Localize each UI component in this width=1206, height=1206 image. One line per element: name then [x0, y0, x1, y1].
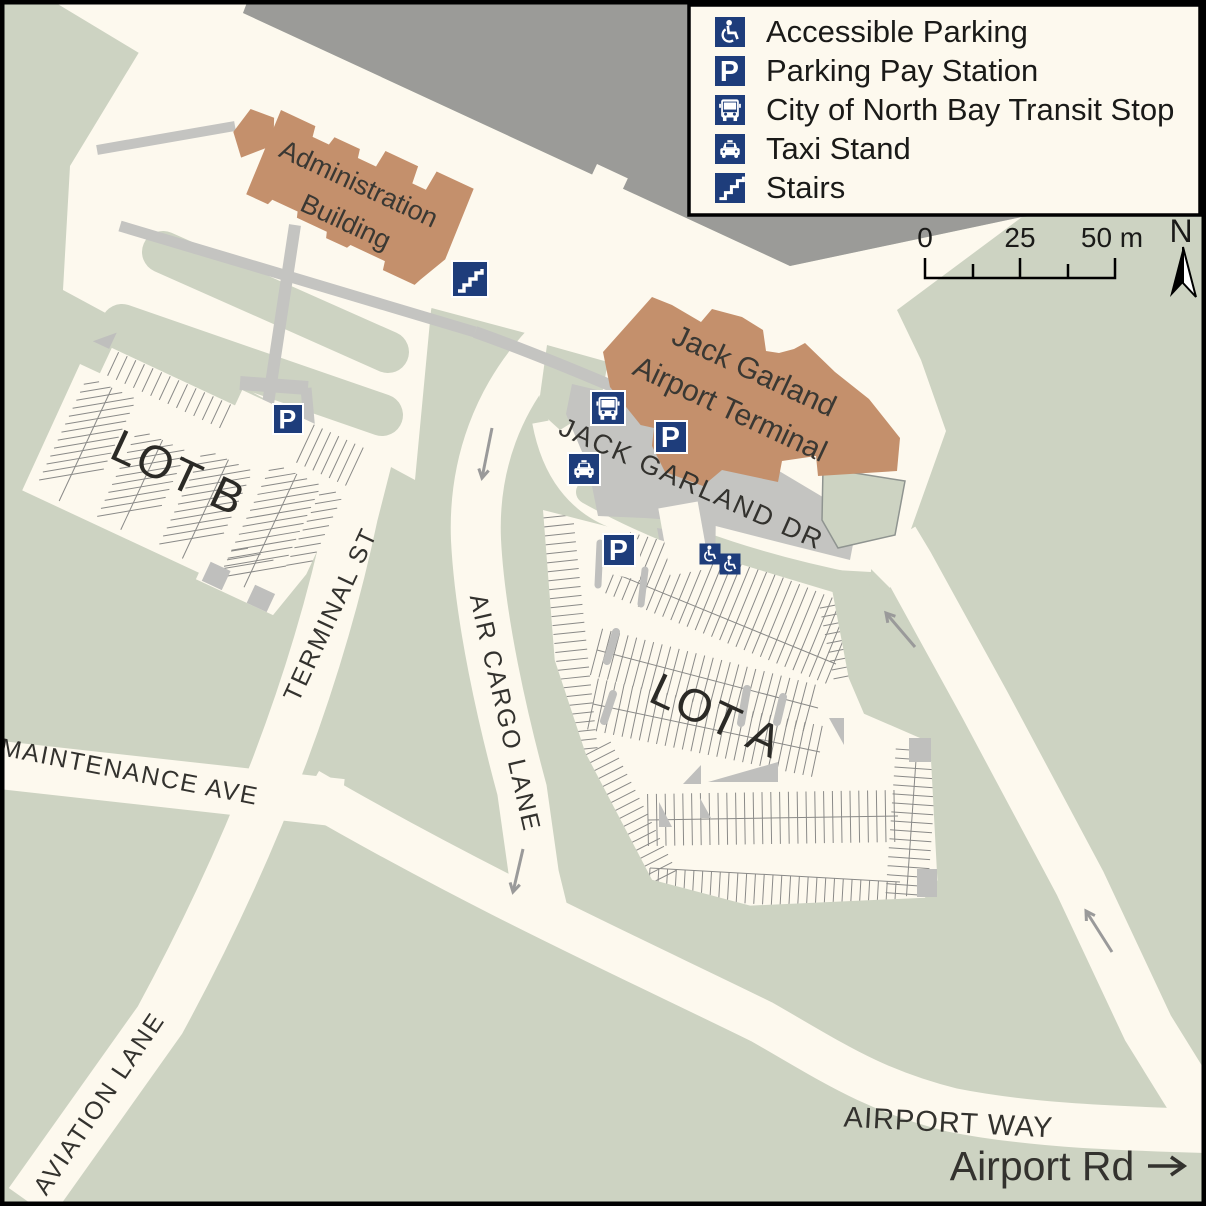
svg-text:P: P: [609, 535, 628, 567]
svg-text:N: N: [1169, 213, 1192, 249]
svg-text:Parking Pay Station: Parking Pay Station: [766, 53, 1038, 88]
svg-text:P: P: [661, 422, 680, 454]
svg-text:Taxi Stand: Taxi Stand: [766, 131, 911, 166]
svg-text:Airport Rd: Airport Rd: [950, 1143, 1135, 1189]
svg-text:50 m: 50 m: [1081, 222, 1143, 253]
svg-text:P: P: [720, 56, 739, 88]
svg-text:Accessible Parking: Accessible Parking: [766, 14, 1028, 49]
svg-text:0: 0: [917, 222, 933, 253]
svg-text:25: 25: [1004, 222, 1035, 253]
svg-text:P: P: [279, 405, 297, 435]
svg-text:City of North Bay Transit Stop: City of North Bay Transit Stop: [766, 92, 1174, 127]
svg-text:Stairs: Stairs: [766, 170, 845, 205]
